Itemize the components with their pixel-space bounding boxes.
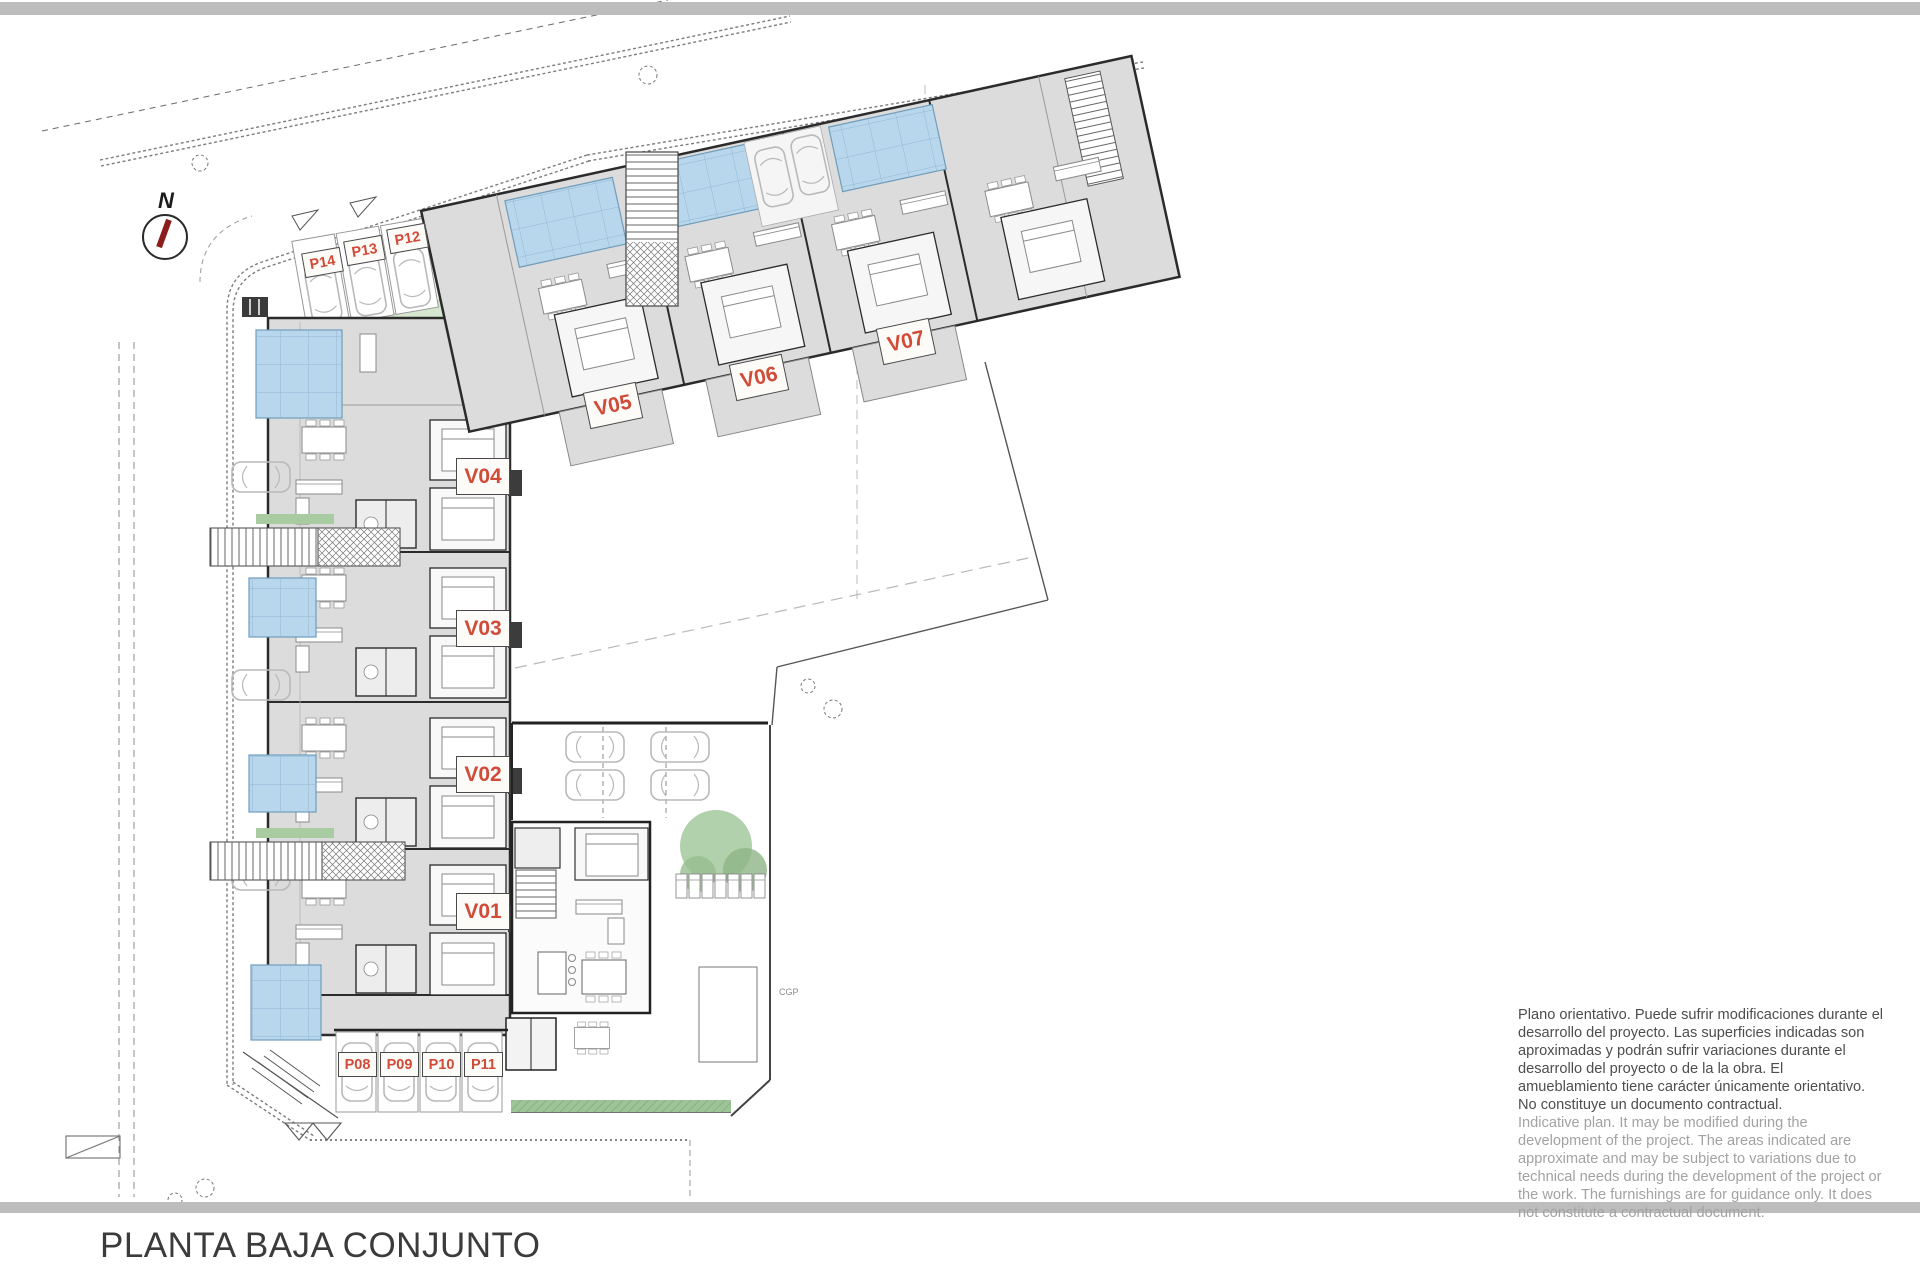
stairs xyxy=(626,152,678,306)
utility-box-label: CGP xyxy=(779,987,799,997)
north-building-wing xyxy=(421,56,1192,488)
unit-label-v03: V03 xyxy=(456,610,510,647)
stairs xyxy=(516,870,556,918)
disclaimer-spanish: Plano orientativo. Puede sufrir modifica… xyxy=(1518,1006,1884,1114)
guest-parking xyxy=(512,723,768,820)
north-arrow: N xyxy=(138,190,202,274)
disclaimer-block: Plano orientativo. Puede sufrir modifica… xyxy=(1518,1006,1884,1222)
page-top-bar xyxy=(0,2,1920,15)
stairs xyxy=(210,842,405,880)
swimming-pool xyxy=(251,965,321,1040)
unit-label-v04: V04 xyxy=(456,458,510,495)
scale-symbol xyxy=(66,1136,120,1158)
unit-label-v02: V02 xyxy=(456,756,510,793)
parking-label-p10: P10 xyxy=(422,1052,461,1077)
swimming-pool xyxy=(249,755,316,812)
clubhouse xyxy=(506,822,650,1070)
swimming-pool xyxy=(256,330,342,418)
floor-plan-page: { "page": { "title": "PLANTA BAJA CONJUN… xyxy=(0,0,1920,1280)
parking-label-p08: P08 xyxy=(338,1052,377,1077)
north-label: N xyxy=(158,188,174,214)
parking-label-p11: P11 xyxy=(464,1052,503,1077)
stairs xyxy=(243,1050,338,1118)
page-title: PLANTA BAJA CONJUNTO xyxy=(100,1226,540,1266)
swimming-pool xyxy=(249,578,316,637)
parking-label-p09: P09 xyxy=(380,1052,419,1077)
stairs xyxy=(210,528,400,566)
disclaimer-english: Indicative plan. It may be modified duri… xyxy=(1518,1114,1884,1222)
unit-label-v01: V01 xyxy=(456,893,510,930)
